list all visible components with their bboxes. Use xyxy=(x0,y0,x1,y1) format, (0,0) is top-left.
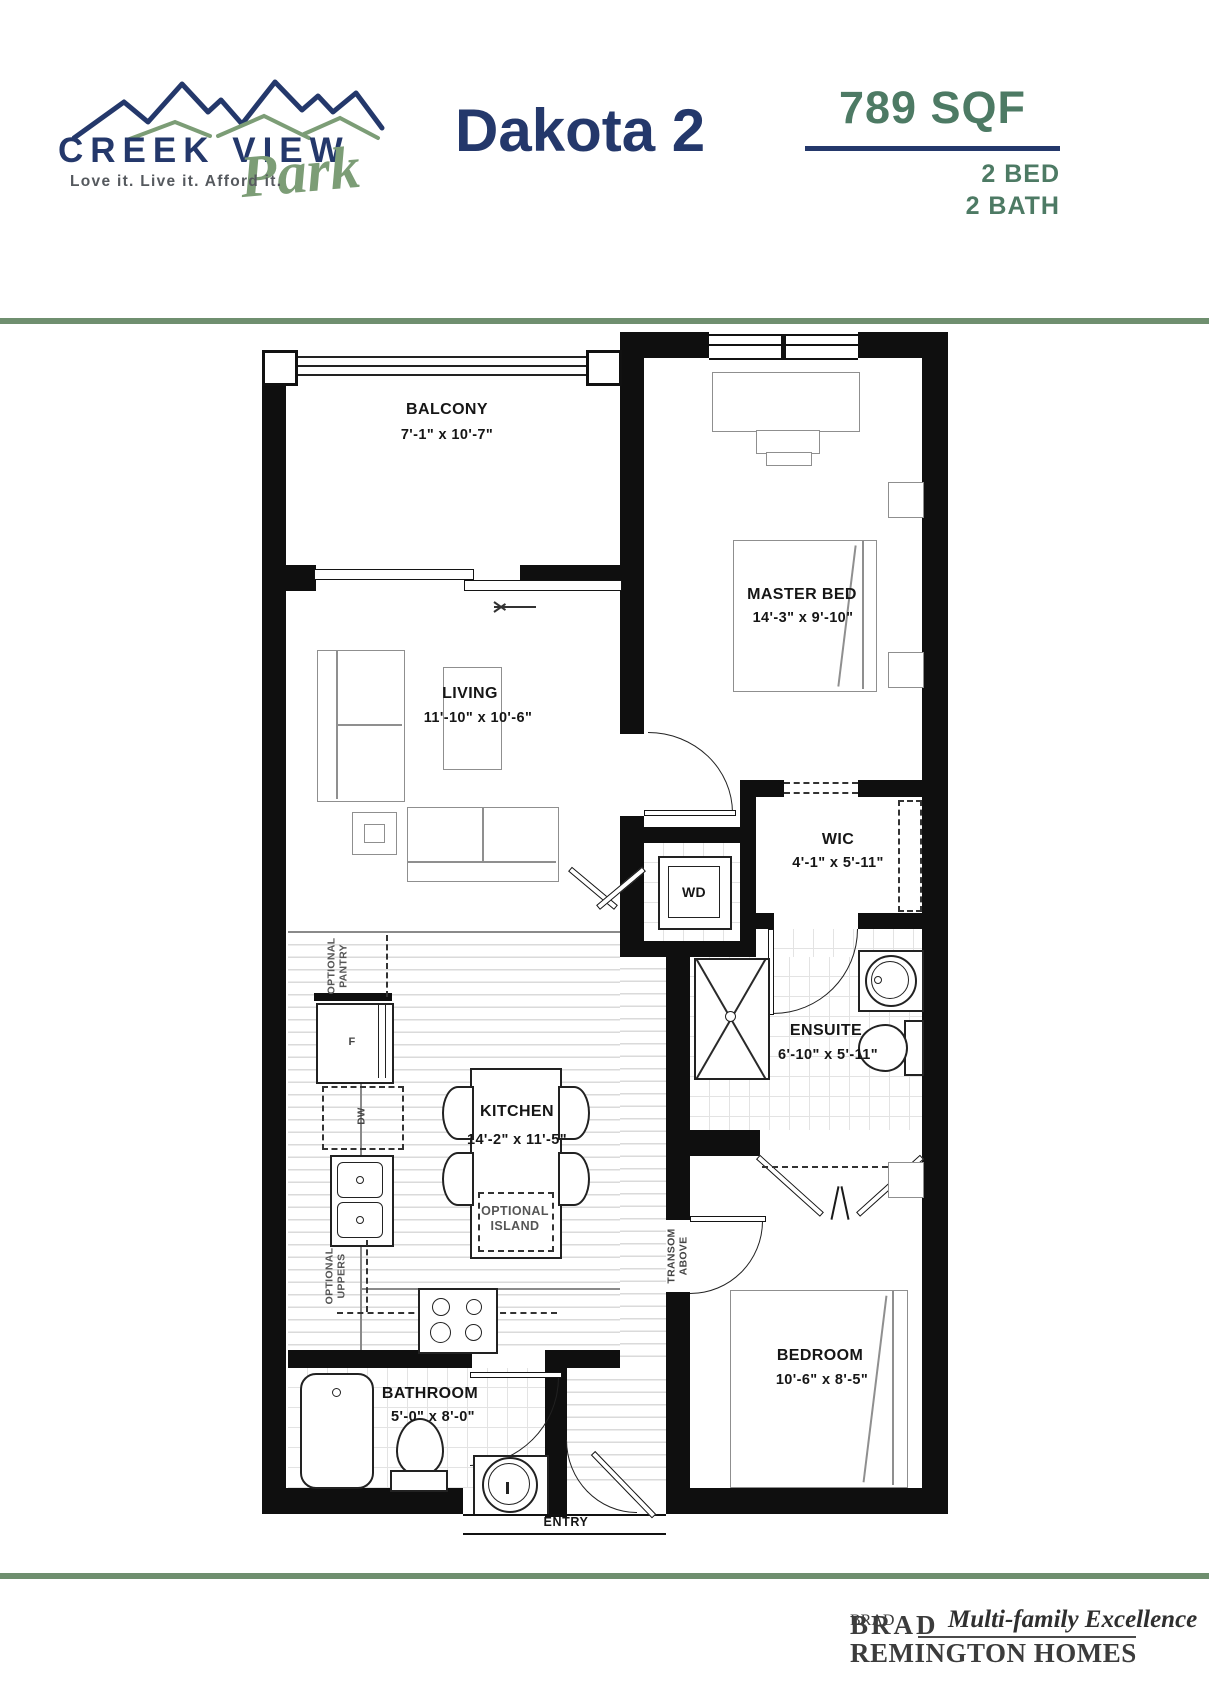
chair xyxy=(558,1152,590,1206)
wall-bedroom-top xyxy=(666,1130,760,1156)
bathroom-door-leaf xyxy=(470,1372,562,1378)
balcony-rail-line xyxy=(296,365,586,367)
room-dims-master: 14'-3" x 9'-10" xyxy=(753,610,854,626)
balcony-rail-line xyxy=(296,356,586,358)
transom-label-line1: TRANSOM xyxy=(667,1228,679,1283)
master-desk-chair xyxy=(766,452,812,466)
floorplan-sheet: CREEK VIEW Park Love it. Live it. Afford… xyxy=(0,0,1209,1700)
sliding-door-panel xyxy=(464,580,622,591)
balcony-rail-post xyxy=(262,350,298,386)
island-label: OPTIONAL ISLAND xyxy=(481,1204,549,1234)
ensuite-sink-faucet xyxy=(874,976,882,984)
sink-drain xyxy=(356,1176,364,1184)
room-dims-ensuite: 6'-10" x 5'-11" xyxy=(778,1047,878,1063)
room-name-ensuite: ENSUITE xyxy=(790,1022,862,1040)
fridge-label: F xyxy=(348,1036,355,1048)
wall-wd-top xyxy=(620,827,744,843)
entry-door-arc xyxy=(566,1440,637,1513)
dw-label: DW xyxy=(356,1107,368,1124)
wall-master-top-right xyxy=(858,332,948,358)
wall-wic-top-left xyxy=(740,780,784,797)
hall-door-leaf xyxy=(568,867,618,910)
wic-opening-dash xyxy=(784,792,858,794)
wd-label: WD xyxy=(682,884,706,900)
wall-left xyxy=(262,350,286,1488)
transom-label: TRANSOM ABOVE xyxy=(667,1228,690,1283)
balcony-rail-line xyxy=(296,374,586,376)
master-bed-headboard xyxy=(862,541,864,689)
wall-wd-wic-divider xyxy=(740,780,756,957)
pantry-label: OPTIONAL PANTRY xyxy=(327,938,350,995)
toilet-bowl xyxy=(396,1418,444,1476)
nightstand xyxy=(888,1162,924,1198)
master-door-arc xyxy=(648,732,733,813)
bedroom-door-arc xyxy=(690,1221,763,1294)
wall-bedroom-left-upper xyxy=(666,1156,690,1220)
master-door-leaf xyxy=(644,810,736,816)
wall-wic-top-right xyxy=(858,780,922,797)
master-desk-chair xyxy=(756,430,820,454)
wic-opening-dash xyxy=(784,782,858,784)
nightstand xyxy=(888,482,924,518)
wall-right xyxy=(922,332,948,1514)
uppers-label-line1: OPTIONAL xyxy=(325,1248,337,1305)
builder-script: Multi-family Excellence xyxy=(948,1606,1197,1634)
living-kitchen-boundary xyxy=(288,931,620,933)
room-dims-wic: 4'-1" x 5'-11" xyxy=(792,855,884,871)
wall-living-master-divider xyxy=(620,332,644,734)
balcony-rail-post xyxy=(586,350,622,386)
shower-drain xyxy=(725,1011,736,1022)
french-door-chevron xyxy=(830,1186,839,1220)
room-dims-bathroom: 5'-0" x 8'-0" xyxy=(391,1409,475,1425)
builder-name-bottom: REMINGTON HOMES xyxy=(850,1638,1137,1669)
bathroom-sink-basin xyxy=(488,1463,530,1505)
room-dims-balcony: 7'-1" x 10'-7" xyxy=(401,427,493,443)
wall-balcony-bottom-left xyxy=(262,565,316,591)
wall-ensuite-top-left xyxy=(748,913,774,929)
room-dims-bedroom: 10'-6" x 8'-5" xyxy=(776,1372,868,1388)
stove-burner xyxy=(430,1322,451,1343)
wall-kitchen-bottom-right xyxy=(567,1350,620,1368)
wall-ensuite-top-right xyxy=(858,913,922,929)
french-door-chevron xyxy=(840,1186,849,1220)
floorplan: BALCONY 7'-1" x 10'-7" MASTER BED 14'-3"… xyxy=(0,0,1209,1700)
master-window xyxy=(709,334,858,360)
stove-burner xyxy=(465,1324,482,1341)
transom-label-line2: ABOVE xyxy=(678,1228,690,1283)
stove xyxy=(418,1288,498,1354)
bedroom-bed xyxy=(730,1290,908,1488)
bathroom-sink-faucet xyxy=(506,1482,509,1494)
side-table-inner xyxy=(364,824,385,843)
french-door-leaf xyxy=(756,1155,824,1217)
room-dims-kitchen: 14'-2" x 11'-5" xyxy=(467,1132,567,1148)
room-name-bathroom: BATHROOM xyxy=(382,1385,478,1403)
wall-bedroom-left-lower xyxy=(666,1292,690,1488)
room-name-living: LIVING xyxy=(442,685,498,703)
fridge-door-line xyxy=(378,1005,386,1078)
bedroom-bed-headboard xyxy=(892,1291,894,1485)
sliding-door-panel xyxy=(314,569,474,580)
stove-burner xyxy=(466,1299,482,1315)
uppers-label-line2: UPPERS xyxy=(336,1248,348,1305)
wic-shelf xyxy=(898,800,922,912)
entry-label: ENTRY xyxy=(544,1515,589,1529)
nightstand xyxy=(888,652,924,688)
sink-drain xyxy=(356,1216,364,1224)
island-label-line1: OPTIONAL xyxy=(481,1204,549,1219)
chair xyxy=(442,1152,474,1206)
toilet-tank xyxy=(390,1470,448,1492)
room-dims-living: 11'-10" x 10'-6" xyxy=(424,710,532,726)
pantry-label-line1: OPTIONAL xyxy=(327,938,339,995)
room-name-wic: WIC xyxy=(822,831,854,849)
room-name-bedroom: BEDROOM xyxy=(777,1347,863,1365)
room-name-master: MASTER BED xyxy=(747,586,857,604)
sofa-cushion-line xyxy=(482,808,484,862)
wall-master-top-left xyxy=(644,332,709,358)
wall-ensuite-left xyxy=(666,957,690,1130)
room-name-balcony: BALCONY xyxy=(406,401,488,419)
sofa-cushion-line xyxy=(338,724,402,726)
stove-burner xyxy=(432,1298,450,1316)
wall-bottom-right xyxy=(666,1488,948,1514)
uppers-dash-vertical xyxy=(366,1240,368,1312)
bathtub-faucet xyxy=(332,1388,341,1397)
uppers-label: OPTIONAL UPPERS xyxy=(325,1248,348,1305)
pantry-dash-line xyxy=(386,935,388,997)
island-label-line2: ISLAND xyxy=(481,1219,549,1234)
sofa-vertical xyxy=(317,650,405,802)
pantry-label-line2: PANTRY xyxy=(338,938,350,995)
bedroom-door-leaf xyxy=(690,1216,766,1222)
wall-wd-bottom xyxy=(620,941,748,957)
room-name-kitchen: KITCHEN xyxy=(480,1103,554,1121)
master-desk xyxy=(712,372,860,432)
